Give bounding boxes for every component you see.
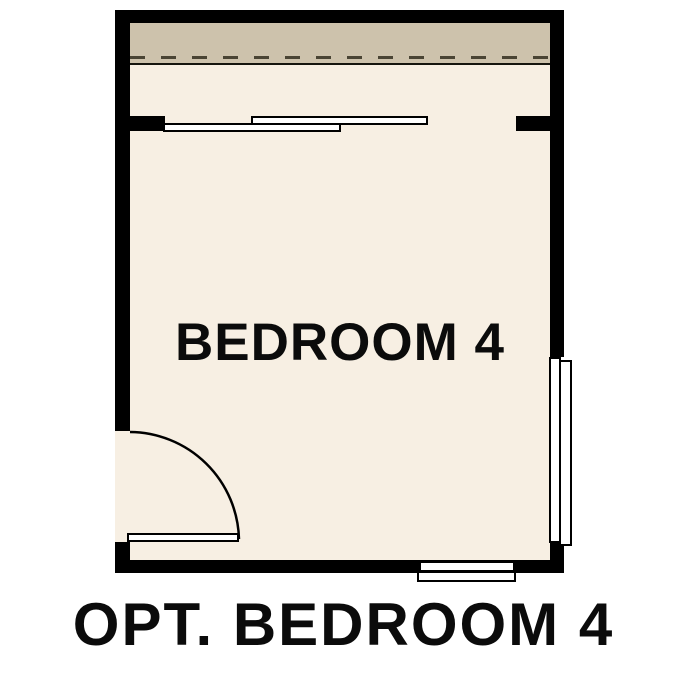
- floor-plan: BEDROOM 4: [0, 0, 687, 687]
- plan-caption: OPT. BEDROOM 4: [0, 593, 687, 657]
- closet-wall-stub-left: [130, 116, 165, 131]
- overhang-dashed-line: [130, 56, 550, 59]
- door-leaf: [127, 533, 239, 542]
- wall-left-upper: [115, 10, 130, 431]
- door-swing-arc: [126, 428, 246, 548]
- wall-right-upper: [550, 10, 564, 357]
- wall-right-lower: [550, 543, 564, 573]
- window-bottom-lower-pane: [417, 571, 516, 582]
- optional-area-band: [130, 23, 550, 65]
- closet-wall-stub-right: [516, 116, 550, 131]
- window-right-outer-pane: [559, 360, 572, 546]
- room-label: BEDROOM 4: [130, 316, 550, 369]
- bypass-door-panel-lower: [163, 123, 341, 132]
- wall-top: [115, 10, 564, 23]
